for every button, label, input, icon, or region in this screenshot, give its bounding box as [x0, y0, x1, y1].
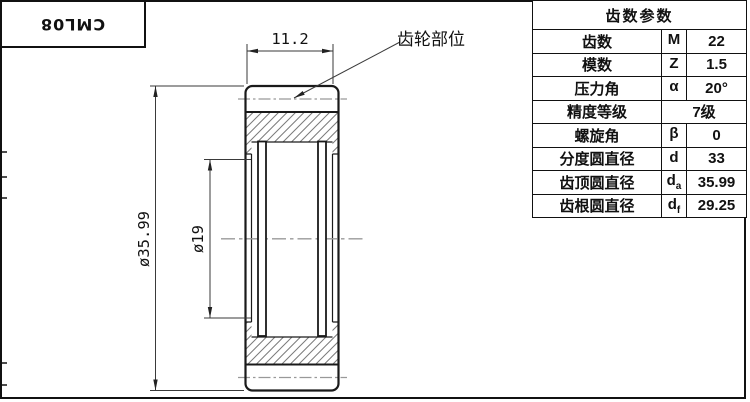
param-symbol: df	[662, 194, 687, 218]
param-label: 压力角	[533, 77, 662, 101]
param-label: 分度圆直径	[533, 147, 662, 171]
dimension-outer-diameter-label: ø35.99	[135, 211, 153, 267]
table-row: 模数 Z 1.5	[533, 53, 747, 77]
leader-label: 齿轮部位	[397, 30, 465, 49]
table-row: 分度圆直径 d 33	[533, 147, 747, 171]
param-value: 29.25	[687, 194, 747, 218]
param-label: 齿顶圆直径	[533, 171, 662, 195]
param-value: 20°	[687, 77, 747, 101]
param-symbol: Z	[662, 53, 687, 77]
dimension-width-label: 11.2	[271, 30, 308, 48]
dimension-width: 11.2	[247, 30, 333, 84]
param-value: 22	[687, 30, 747, 54]
param-value: 35.99	[687, 171, 747, 195]
table-header: 齿数参数	[533, 1, 747, 30]
param-symbol: da	[662, 171, 687, 195]
param-symbol: M	[662, 30, 687, 54]
param-value: 33	[687, 147, 747, 171]
title-block: CML08	[2, 2, 146, 48]
leader-arrow	[294, 91, 305, 98]
gear-parameter-table: 齿数参数 齿数 M 22 模数 Z 1.5 压力角 α 20° 精度等级 7级 …	[532, 0, 747, 218]
table-row: 精度等级 7级	[533, 100, 747, 124]
param-label: 螺旋角	[533, 124, 662, 148]
param-label: 齿数	[533, 30, 662, 54]
part-number: CML08	[40, 15, 105, 34]
param-label: 齿根圆直径	[533, 194, 662, 218]
param-symbol: d	[662, 147, 687, 171]
table-row: 齿顶圆直径 da 35.99	[533, 171, 747, 195]
table-row: 压力角 α 20°	[533, 77, 747, 101]
leader-gear-zone: 齿轮部位	[294, 30, 465, 98]
table-row: 齿根圆直径 df 29.25	[533, 194, 747, 218]
param-value: 1.5	[687, 53, 747, 77]
table-row: 齿数 M 22	[533, 30, 747, 54]
param-label: 模数	[533, 53, 662, 77]
param-symbol: α	[662, 77, 687, 101]
param-value: 7级	[662, 100, 747, 124]
param-symbol: β	[662, 124, 687, 148]
drawing-sheet: 11.2 ø35.99 ø19 齿轮部位 CML08 齿数参数	[0, 0, 750, 402]
param-label: 精度等级	[533, 100, 662, 124]
dimension-bore-diameter-label: ø19	[189, 225, 207, 253]
param-value: 0	[687, 124, 747, 148]
table-row: 螺旋角 β 0	[533, 124, 747, 148]
